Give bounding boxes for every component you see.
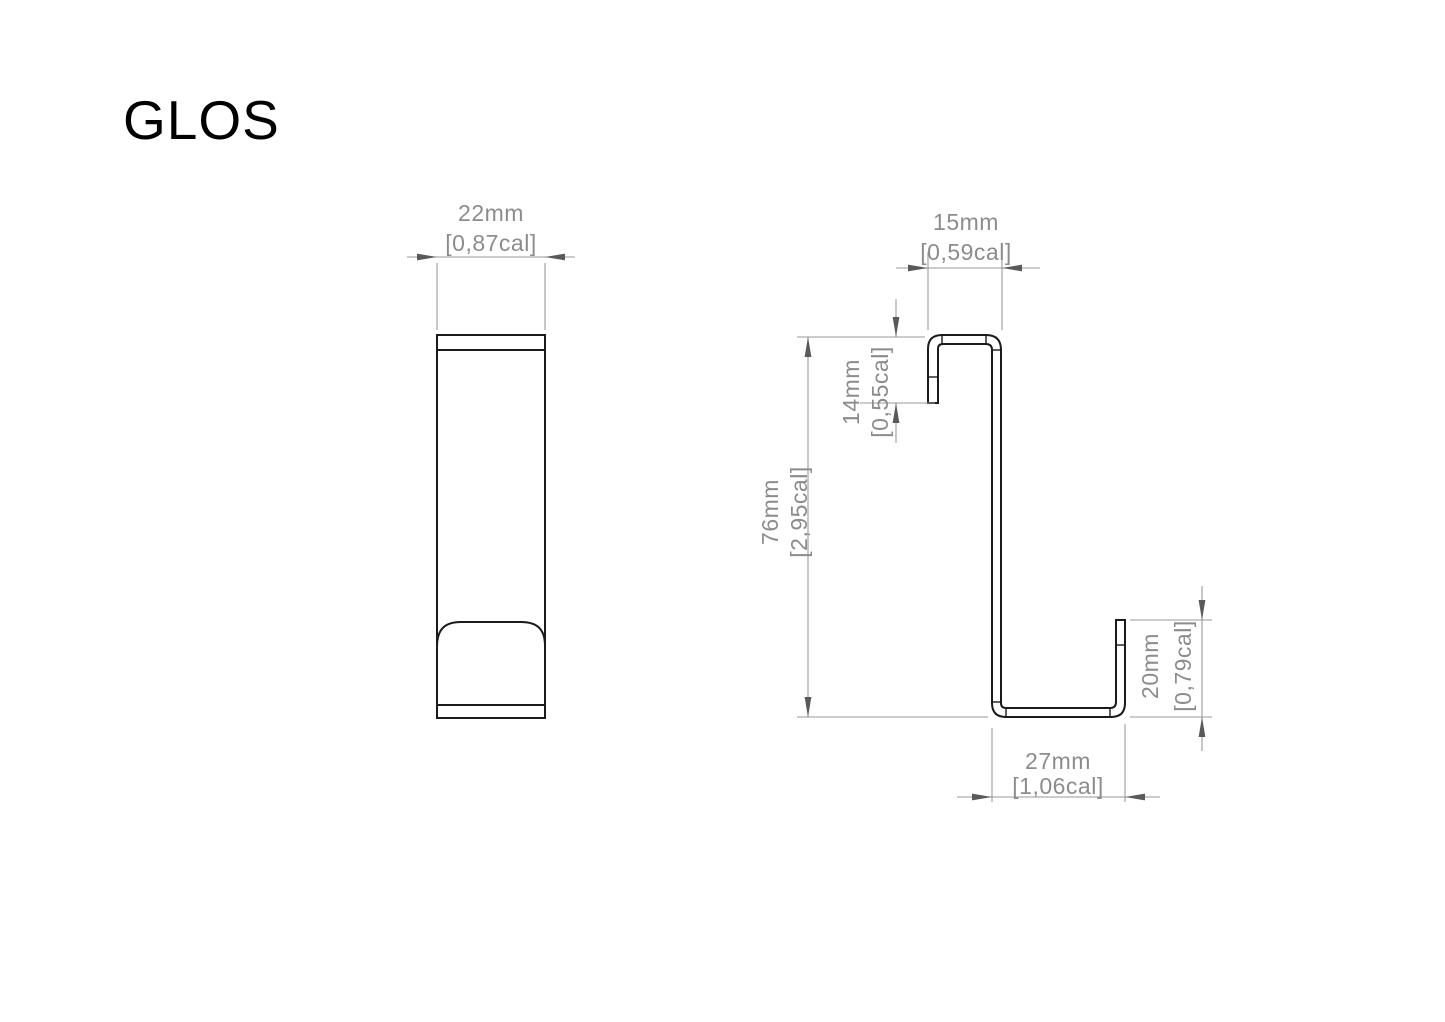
dimension-bottom-depth: 27mm [1,06cal]: [957, 724, 1160, 802]
arrow-down-icon: [805, 697, 812, 717]
dim-top-hook-mm: 15mm: [933, 209, 999, 235]
dimension-back-lip-height: 20mm [0,79cal]: [1130, 586, 1212, 751]
dimension-top-hook-width: 15mm [0,59cal]: [896, 209, 1040, 330]
dim-front-lip-mm: 14mm: [838, 359, 864, 425]
front-view: [437, 335, 545, 718]
side-view: [928, 335, 1125, 717]
dim-front-lip-cal: [0,55cal]: [867, 346, 893, 437]
dim-bottom-depth-cal: [1,06cal]: [1012, 773, 1103, 799]
dimension-front-lip-height: 14mm [0,55cal]: [838, 299, 935, 443]
arrow-left-icon: [1125, 794, 1145, 801]
arrow-up-icon: [893, 403, 900, 423]
dim-bottom-depth-mm: 27mm: [1025, 748, 1091, 774]
arrow-down-icon: [893, 317, 900, 337]
dim-total-height-mm: 76mm: [757, 479, 783, 545]
page-title: GLOS: [123, 89, 280, 151]
front-view-body: [437, 335, 545, 718]
arrow-right-icon: [417, 254, 437, 261]
dim-top-hook-cal: [0,59cal]: [920, 239, 1011, 265]
arrow-left-icon: [1002, 265, 1022, 272]
dim-total-height-cal: [2,95cal]: [786, 466, 812, 557]
front-view-tongue-curve: [437, 622, 545, 647]
arrow-right-icon: [972, 794, 992, 801]
dim-front-width-mm: 22mm: [458, 200, 524, 226]
arrow-up-icon: [1199, 717, 1206, 737]
arrow-up-icon: [805, 337, 812, 357]
dim-back-lip-mm: 20mm: [1137, 633, 1163, 699]
side-view-profile: [928, 335, 1125, 717]
arrow-right-icon: [908, 265, 928, 272]
arrow-left-icon: [545, 254, 565, 261]
technical-drawing-canvas: GLOS 22mm [0,87cal]: [0, 0, 1445, 1022]
dimension-front-width: 22mm [0,87cal]: [407, 200, 575, 330]
dim-front-width-cal: [0,87cal]: [445, 230, 536, 256]
side-view-bend-tangent-lines: [928, 335, 1125, 717]
arrow-down-icon: [1199, 600, 1206, 620]
dim-back-lip-cal: [0,79cal]: [1170, 620, 1196, 711]
